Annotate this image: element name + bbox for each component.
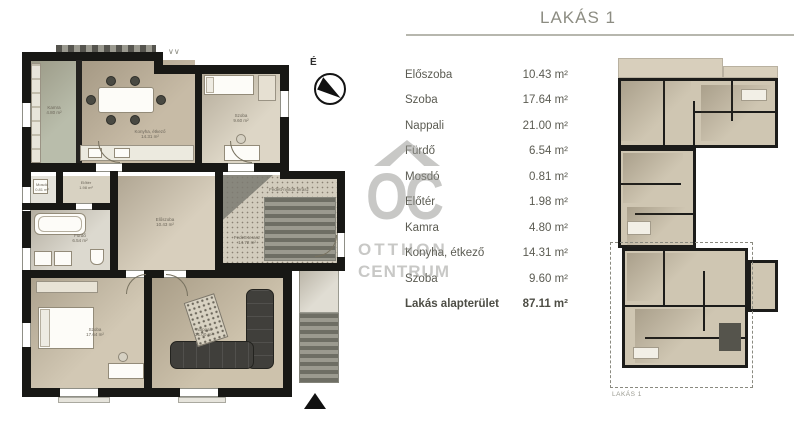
room-label-konyha: Konyha, étkező 14.31 m² [114,129,186,140]
room-area: 17.64 m² [523,94,568,106]
wall [22,270,292,278]
room-area: 14.31 m² [114,134,186,139]
pillow [40,309,50,347]
table-row: Kamra 4.80 m² [405,215,568,240]
table-row: Szoba 9.60 m² [405,266,568,291]
wall [215,171,223,271]
room-label-mosdo: Mosdó 0.81 m² [28,183,56,193]
north-label: É [310,57,317,68]
room-label: Szoba [405,273,438,285]
wall [693,101,695,145]
room-label: Szoba [405,94,438,106]
window-sill [58,397,110,403]
total-label: Lakás alapterület [405,298,499,310]
window [22,103,31,127]
door-opening [96,163,122,172]
entrance-arrow-icon [304,393,326,409]
chair [106,76,116,86]
room-area: 14.72 m² [218,240,276,245]
plants-icon: ∨∨ [168,47,180,56]
room-label: Előtér [405,196,435,208]
overview-caption: LAKÁS 1 [612,391,642,398]
room-label: Mosdó [405,171,440,183]
table-row: Konyha, étkező 14.31 m² [405,240,568,265]
room-label-furdo: Fürdő 6.54 m² [60,233,100,244]
room-area: 21.00 m² [176,332,232,337]
main-floor-plan: ∨∨ [18,45,352,417]
table-row: Szoba 17.64 m² [405,87,568,112]
bathtub-inner [38,216,82,232]
room-label: Kamra [405,222,439,234]
furniture [627,221,651,235]
room-area: 17.64 m² [70,332,120,337]
room-label-eloter: Előtér 1.98 m² [68,181,104,191]
shadow [623,153,683,203]
room-label-nappali: Nappali 21.00 m² [176,327,232,338]
sofa-horizontal [170,341,254,369]
window [22,323,31,347]
toilet [90,249,104,265]
table-row: Előtér 1.98 m² [405,189,568,214]
room-area: 6.54 m² [529,145,568,157]
shadow [621,81,691,141]
total-area: 87.11 m² [523,298,568,310]
overview-roof-strip [618,58,723,78]
wall [22,52,163,61]
room-area: 0.81 m² [28,188,56,193]
chair [130,115,140,125]
room-area: 10.43 m² [523,69,568,81]
door-opening [337,233,345,257]
desk-chair [118,352,128,362]
room-label-eloszoba: Előszoba 10.43 m² [130,217,200,228]
door-opening [228,163,254,172]
room-area: 0.81 m² [529,171,568,183]
unit-highlight-outline [610,242,753,388]
overview-plan: LAKÁS 1 [605,50,800,410]
room-label-kamra: Kamra 4.80 m² [32,105,76,116]
wall [280,65,289,179]
wall [110,171,118,270]
room-label-szoba-nagy: Szoba 17.64 m² [70,327,120,338]
room-label: Nappali [405,120,444,132]
title-divider [406,34,794,36]
room-area: 10.43 m² [130,222,200,227]
desk [108,363,144,379]
table-total-row: Lakás alapterület 87.11 m² [405,291,568,316]
sink [54,251,72,266]
pillow [206,77,214,93]
window [180,388,218,397]
window [22,248,31,272]
overview-block-left [618,148,696,248]
room-name: Fedett-nyitott terasz [256,187,322,192]
room-label: Előszoba [405,69,452,81]
table-row: Nappali 21.00 m² [405,113,568,138]
room-area: 1.98 m² [68,186,104,191]
wall [283,263,292,397]
wall [195,65,202,163]
room-area: 4.80 m² [32,110,76,115]
furniture [741,89,767,101]
window [280,91,289,117]
room-area: 6.54 m² [60,238,100,243]
wardrobe [36,281,98,293]
room-area: 1.98 m² [529,196,568,208]
chair [156,95,166,105]
table-row: Fürdő 6.54 m² [405,138,568,163]
room-label: Fürdő [405,145,435,157]
chair [86,95,96,105]
north-compass-icon [314,73,346,105]
overview-block-top [618,78,778,148]
overview-roof-strip [723,66,778,78]
sink [34,251,52,266]
room-area: 4.80 m² [529,222,568,234]
exterior-stairs [299,313,339,383]
dining-table [98,87,154,113]
room-area: 9.60 m² [216,118,266,123]
chair [130,76,140,86]
room-area: 14.31 m² [523,247,568,259]
room-label-szoba-kis: Szoba 9.60 m² [216,113,266,124]
window [60,388,98,397]
exterior-landing-shadow [299,265,339,313]
table-row: Mosdó 0.81 m² [405,164,568,189]
room-label: Konyha, étkező [405,247,484,259]
room-area: 9.60 m² [529,273,568,285]
wall [160,65,288,74]
wall [280,171,345,179]
wardrobe [258,75,276,101]
room-label-terasz-felso: Fedett-nyitott terasz [256,187,322,192]
chair [106,115,116,125]
door-opening [76,203,92,210]
window-sill [178,397,226,403]
compass-needle-icon [316,75,344,103]
room-area: 21.00 m² [523,120,568,132]
wall [22,203,117,210]
page-title: LAKÁS 1 [400,8,756,28]
table-row: Előszoba 10.43 m² [405,62,568,87]
room-label-terasz-also: Fedett terasz 14.72 m² [218,235,276,246]
